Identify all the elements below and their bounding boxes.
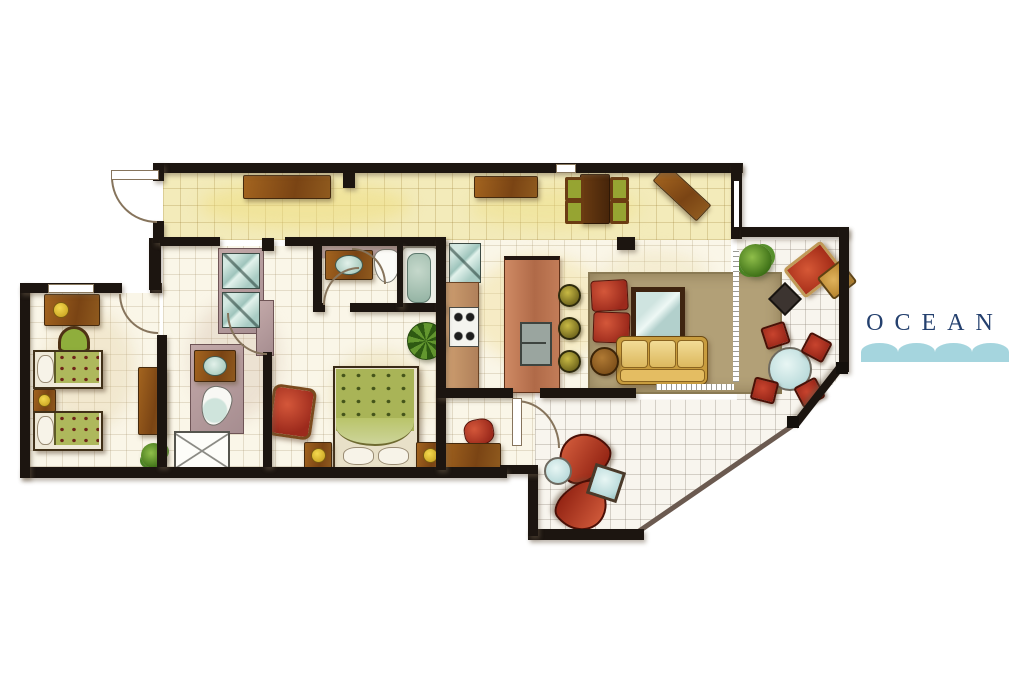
- sideboard: [474, 176, 538, 198]
- bedroom-armchair: [267, 383, 318, 441]
- ocean-label: OCEAN: [856, 310, 1014, 337]
- bed-pillow: [343, 447, 374, 465]
- refrigerator: [449, 243, 481, 283]
- range-cooktop: [449, 307, 479, 347]
- bar-stool: [558, 317, 581, 340]
- round-side-table: [590, 347, 619, 376]
- entry-door-arc: [111, 177, 157, 223]
- wall: [343, 173, 355, 188]
- floor-plan-scene: OCEAN: [0, 0, 1024, 683]
- door-slit: [734, 181, 739, 227]
- desk-chair: [58, 326, 90, 353]
- dining-chair: [565, 177, 584, 201]
- terrace-plant: [739, 244, 772, 277]
- desk: [44, 294, 100, 326]
- wall: [436, 388, 513, 398]
- round-glass-table: [544, 457, 572, 485]
- twin-bed: [33, 411, 103, 451]
- nightstand: [304, 442, 332, 469]
- rail-post: [836, 362, 848, 374]
- ocean-logo: OCEAN: [856, 310, 1014, 367]
- canopy-bed: [333, 366, 419, 470]
- armchair: [590, 279, 629, 312]
- wall: [540, 388, 636, 398]
- shower-stall: [174, 431, 230, 471]
- window: [48, 284, 94, 293]
- balcony-door-leaf: [512, 398, 522, 446]
- island-sink: [520, 322, 552, 366]
- sofa: [616, 336, 708, 385]
- sink-basin: [203, 356, 227, 376]
- wall: [155, 163, 743, 173]
- wardrobe-mirror-door: [222, 253, 260, 289]
- wall: [263, 352, 272, 467]
- hall-bath-vanity: [194, 350, 236, 382]
- wall: [313, 245, 322, 307]
- dining-chair: [565, 200, 584, 224]
- wall: [617, 237, 635, 250]
- bed-pillow: [378, 447, 409, 465]
- twin-nightstand: [33, 389, 56, 412]
- wall: [528, 470, 538, 536]
- bed-drape: [336, 418, 414, 446]
- hall-bench: [243, 175, 331, 199]
- wall: [20, 283, 30, 478]
- waves-icon: [861, 340, 1009, 362]
- wall: [285, 237, 446, 246]
- twin-bed: [33, 350, 103, 389]
- dining-chair: [610, 177, 629, 201]
- bar-stool: [558, 350, 581, 373]
- dining-chair: [610, 200, 629, 224]
- wall: [20, 467, 507, 478]
- wall: [397, 243, 403, 307]
- window: [556, 164, 576, 173]
- bar-stool: [558, 284, 581, 307]
- wall: [528, 529, 644, 540]
- wall: [839, 227, 849, 372]
- sliding-door: [733, 250, 739, 382]
- sliding-door: [656, 384, 734, 390]
- dining-table: [580, 174, 610, 224]
- wall: [157, 335, 167, 467]
- rail-post: [787, 416, 799, 428]
- wall: [741, 227, 849, 237]
- wall: [160, 237, 220, 246]
- wall: [262, 238, 274, 251]
- entry-door-leaf: [111, 170, 159, 180]
- wall: [436, 237, 446, 470]
